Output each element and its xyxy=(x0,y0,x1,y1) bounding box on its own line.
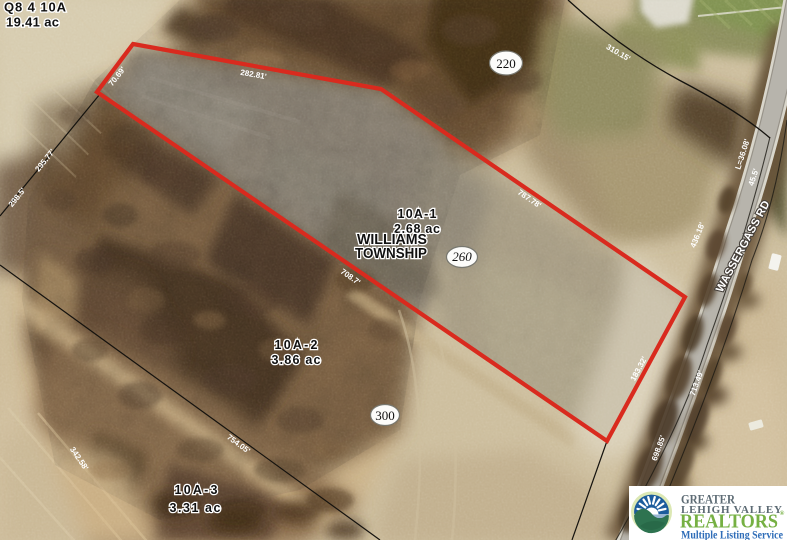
svg-text:®: ® xyxy=(780,510,785,517)
svg-text:260: 260 xyxy=(452,249,472,264)
svg-text:19.41 ac: 19.41 ac xyxy=(6,15,59,30)
svg-text:3.31 ac: 3.31 ac xyxy=(170,501,221,515)
svg-text:Multiple Listing Service: Multiple Listing Service xyxy=(681,528,784,540)
svg-text:220: 220 xyxy=(496,56,516,71)
svg-text:10A-1: 10A-1 xyxy=(398,207,437,221)
svg-text:3.86 ac: 3.86 ac xyxy=(272,353,321,367)
svg-text:10A-3: 10A-3 xyxy=(175,483,218,497)
svg-text:Q8 4 10A: Q8 4 10A xyxy=(4,0,67,15)
svg-text:10A-2: 10A-2 xyxy=(275,338,318,352)
svg-text:300: 300 xyxy=(375,408,395,423)
svg-text:TOWNSHIP: TOWNSHIP xyxy=(355,246,427,262)
